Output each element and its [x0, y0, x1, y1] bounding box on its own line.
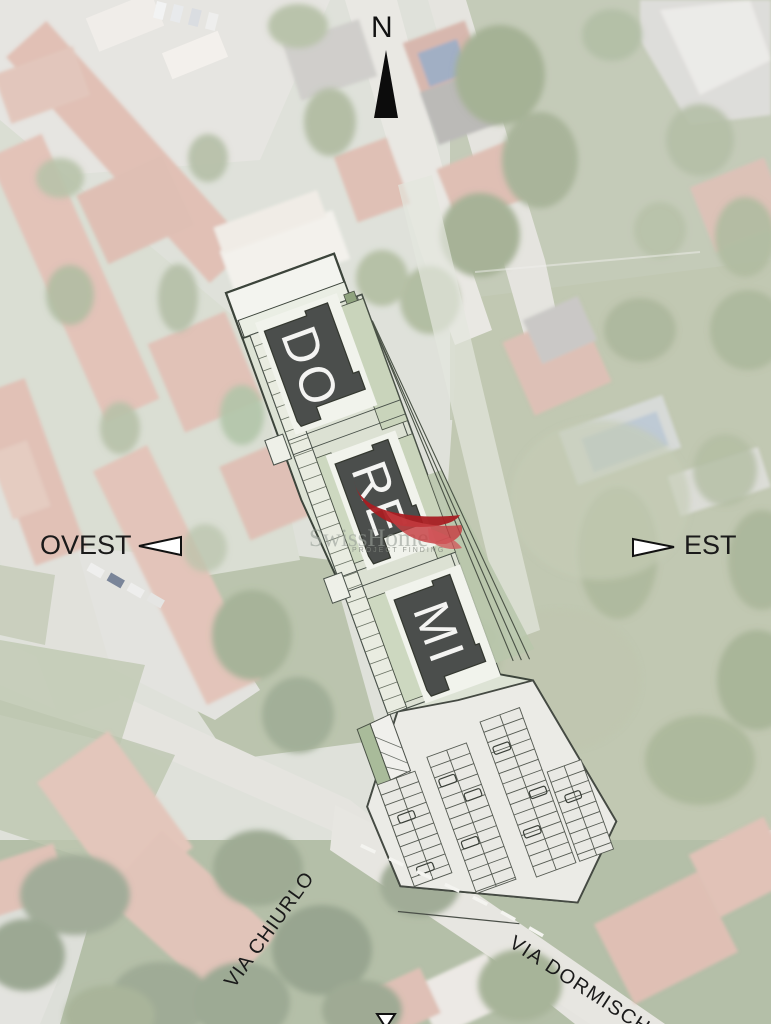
svg-text:OVEST: OVEST: [40, 530, 132, 560]
svg-text:EST: EST: [684, 530, 737, 560]
svg-text:PROJECT FINDING: PROJECT FINDING: [352, 547, 445, 554]
svg-text:N: N: [371, 11, 393, 44]
